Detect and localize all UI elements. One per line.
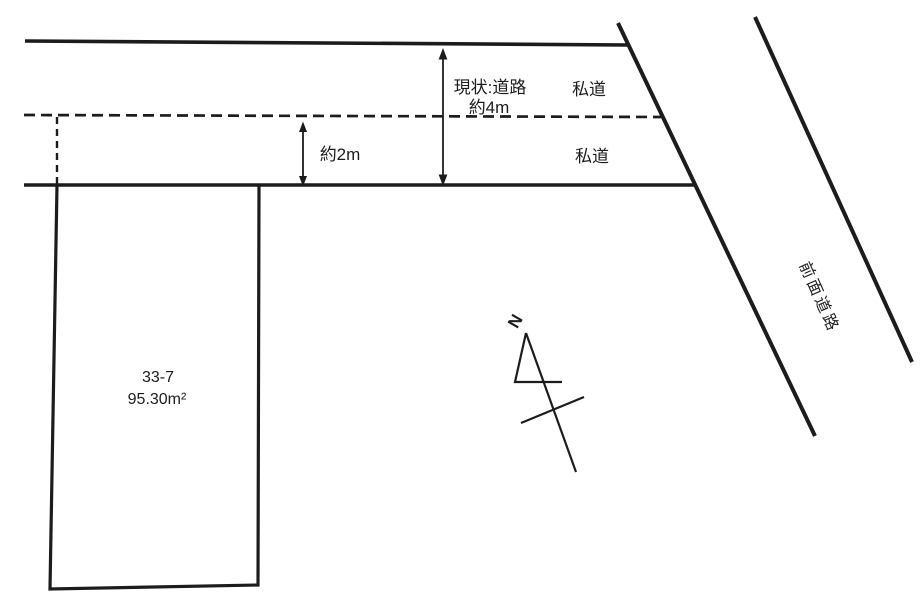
- private-road-upper-label: 私道: [572, 80, 606, 99]
- north-label: N: [504, 311, 527, 331]
- private-road-divider-dashed-line: [24, 115, 661, 117]
- parcel-area-label: 95.30m²: [128, 391, 187, 408]
- north-arrow-head: [515, 333, 562, 382]
- north-arrow-cross-tick: [521, 397, 584, 423]
- private-road-width-label: 約2m: [320, 145, 361, 164]
- north-arrow-icon: N: [504, 311, 584, 472]
- current-road-status-label-line2: 約4m: [469, 98, 510, 117]
- measure-arrow-2m: [299, 122, 307, 187]
- parcel-number-label: 33-7: [142, 369, 174, 386]
- parcel-outline: [50, 185, 259, 589]
- arrow-up-icon: [439, 48, 448, 60]
- front-road-label: 前面道路: [795, 259, 842, 336]
- road-top-boundary-line: [25, 41, 628, 45]
- arrow-up-icon: [299, 122, 307, 133]
- private-road-lower-label: 私道: [575, 147, 609, 166]
- plot-diagram-svg: N 現状:道路 約4m 私道 私道 約2m 33-7 95.30m² 前面道路: [0, 0, 921, 598]
- land-survey-diagram: N 現状:道路 約4m 私道 私道 約2m 33-7 95.30m² 前面道路: [0, 0, 921, 598]
- current-road-status-label-line1: 現状:道路: [454, 78, 527, 97]
